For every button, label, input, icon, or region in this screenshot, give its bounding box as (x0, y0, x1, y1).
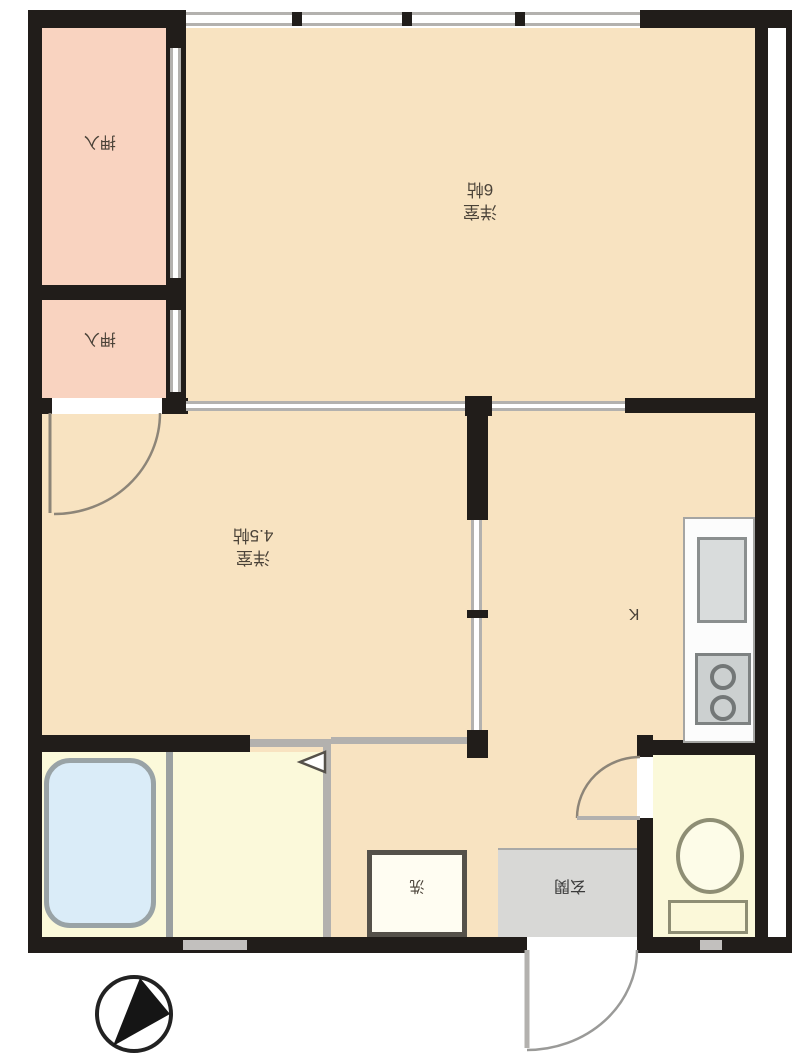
partition-top (467, 398, 488, 520)
toilet-door-opening (637, 757, 653, 818)
stove-burner-icon (710, 664, 736, 690)
toilet-left-wall-bottom (637, 818, 653, 937)
north-arrow-icon (113, 978, 170, 1046)
bath-top-wall (28, 735, 250, 752)
entrance-door-arc (527, 950, 637, 1050)
window-mullion (292, 12, 302, 26)
toilet-left-wall-top (637, 735, 653, 757)
hall-top-door-track (331, 737, 467, 744)
toilet-bottom-vent (700, 940, 722, 950)
left-wall (28, 10, 42, 953)
closet-top-sliding-door (170, 48, 181, 278)
closet-bottom-label: 押入 (60, 327, 140, 348)
mid-wall-post (162, 398, 188, 414)
bathtub (44, 758, 156, 928)
entrance-label: 玄関 (530, 874, 610, 895)
bath-bottom-window (183, 940, 247, 950)
bedroom6-label: 洋室 6帖 (430, 178, 530, 222)
floor-plan: 押入 押入 洋室 6帖 洋室 4.5帖 K 洗 玄関 (0, 0, 800, 1064)
kitchen-label: K (610, 602, 658, 623)
washroom-right-wall (323, 740, 331, 937)
bedroom45-door-opening (52, 398, 162, 414)
partition-sliding-door (471, 520, 482, 730)
top-wall-left (28, 10, 186, 28)
laundry-label: 洗 (393, 876, 441, 896)
top-wall-right (640, 10, 792, 28)
window-mullion (515, 12, 525, 26)
stove-burner-icon (710, 695, 736, 721)
entrance-door-opening (527, 937, 637, 953)
closet-bottom-sliding-door (170, 310, 181, 392)
sliding-door-bedroom45 (186, 401, 465, 411)
kitchen-sink (697, 537, 747, 623)
window (186, 12, 640, 26)
window-mullion (402, 12, 412, 26)
bottom-wall (28, 937, 792, 953)
mid-wall-right (625, 398, 755, 413)
compass-circle (97, 977, 171, 1051)
toilet-tank (668, 900, 748, 934)
bedroom45-label: 洋室 4.5帖 (203, 524, 303, 568)
closet-top-label: 押入 (60, 130, 140, 151)
closet-divider-wall (28, 285, 166, 300)
closet-top-floor (42, 28, 166, 285)
partition-tick (467, 610, 488, 618)
right-wall-inner (755, 28, 768, 937)
bath-divider-wall (166, 752, 173, 937)
closet-bottom-floor (42, 300, 166, 398)
right-wall-outer (786, 10, 792, 953)
washroom-top-door-track (250, 739, 331, 747)
sliding-door-kitchen (492, 401, 625, 411)
mid-wall-left (28, 398, 52, 414)
toilet-bowl-icon (676, 818, 744, 894)
partition-bottom (467, 730, 488, 758)
